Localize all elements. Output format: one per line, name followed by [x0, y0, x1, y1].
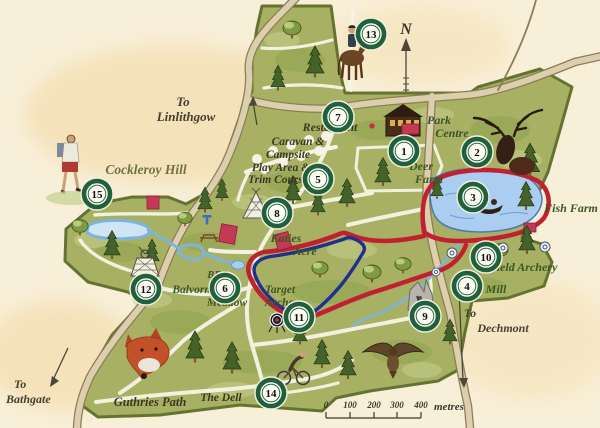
svg-text:8: 8 — [274, 208, 280, 220]
label-target-archery: Target — [265, 284, 296, 296]
scale-tick: 0 — [324, 400, 329, 410]
map-marker-10: 10 — [471, 242, 502, 273]
label-play-area: Play Area & — [252, 162, 310, 174]
map-marker-2: 2 — [462, 137, 493, 168]
map-marker-15: 15 — [82, 179, 113, 210]
map-marker-7: 7 — [323, 102, 354, 133]
label-fish-farm: Fish Farm — [543, 201, 598, 215]
svg-text:9: 9 — [422, 311, 428, 323]
label-katies-acre: Acre — [292, 244, 317, 258]
scale-tick: 100 — [343, 400, 357, 410]
svg-text:6: 6 — [222, 283, 228, 295]
scale-tick: 300 — [389, 400, 404, 410]
map-marker-11: 11 — [284, 302, 315, 333]
sign-bathgate: To — [14, 377, 26, 391]
label-park-centre: Centre — [435, 126, 469, 140]
park-map: N To Linlithgow Cockleroy Hill To Bathga… — [0, 0, 600, 428]
label-mill: Mill — [485, 282, 507, 296]
sign-linlithgow: To — [176, 94, 190, 109]
svg-text:3: 3 — [470, 192, 476, 204]
pond — [232, 261, 245, 269]
svg-text:15: 15 — [92, 189, 104, 201]
scale-unit: metres — [434, 401, 464, 413]
map-marker-6: 6 — [210, 273, 241, 304]
label-the-dell: The Dell — [200, 392, 242, 404]
map-marker-14: 14 — [256, 378, 287, 409]
scale-tick: 200 — [366, 400, 381, 410]
map-marker-4: 4 — [452, 271, 483, 302]
label-katies-acre: Katies — [270, 231, 302, 245]
label-deer-farm: Farm — [414, 172, 443, 186]
label-cockleroy-hill: Cockleroy Hill — [105, 162, 187, 177]
archery-tree-icon — [447, 248, 457, 258]
archery-tree-icon — [432, 268, 440, 276]
scale-tick: 400 — [413, 400, 428, 410]
map-marker-5: 5 — [303, 164, 334, 195]
svg-text:2: 2 — [474, 147, 480, 159]
sign-bathgate: Bathgate — [5, 392, 51, 406]
svg-text:5: 5 — [315, 174, 321, 186]
sign-linlithgow: Linlithgow — [156, 109, 216, 124]
svg-text:11: 11 — [294, 312, 304, 324]
building-icon — [147, 196, 159, 209]
map-marker-8: 8 — [262, 198, 293, 229]
sign-dechmont: Dechmont — [476, 321, 529, 335]
map-marker-3: 3 — [458, 182, 489, 213]
svg-text:12: 12 — [141, 284, 153, 296]
label-caravan: Campsite — [266, 149, 310, 161]
compass-label: N — [399, 21, 413, 38]
building-icon — [402, 124, 419, 134]
svg-text:14: 14 — [266, 388, 278, 400]
svg-text:10: 10 — [481, 252, 493, 264]
svg-text:7: 7 — [335, 112, 341, 124]
label-park-centre: Park — [427, 113, 451, 127]
svg-text:4: 4 — [464, 281, 470, 293]
label-guthries-path: Guthries Path — [114, 395, 187, 409]
sign-dechmont: To — [464, 306, 476, 320]
map-marker-1: 1 — [389, 136, 420, 167]
restaurant-dot-icon — [369, 123, 374, 128]
svg-text:1: 1 — [401, 146, 407, 158]
building-icon — [219, 224, 238, 245]
map-marker-9: 9 — [410, 301, 441, 332]
label-play-area: Trim Course — [248, 174, 308, 186]
archery-tree-icon — [540, 242, 550, 252]
label-caravan: Caravan & — [272, 136, 325, 148]
map-marker-12: 12 — [131, 274, 162, 305]
svg-text:13: 13 — [366, 29, 378, 41]
map-marker-13: 13 — [356, 19, 387, 50]
